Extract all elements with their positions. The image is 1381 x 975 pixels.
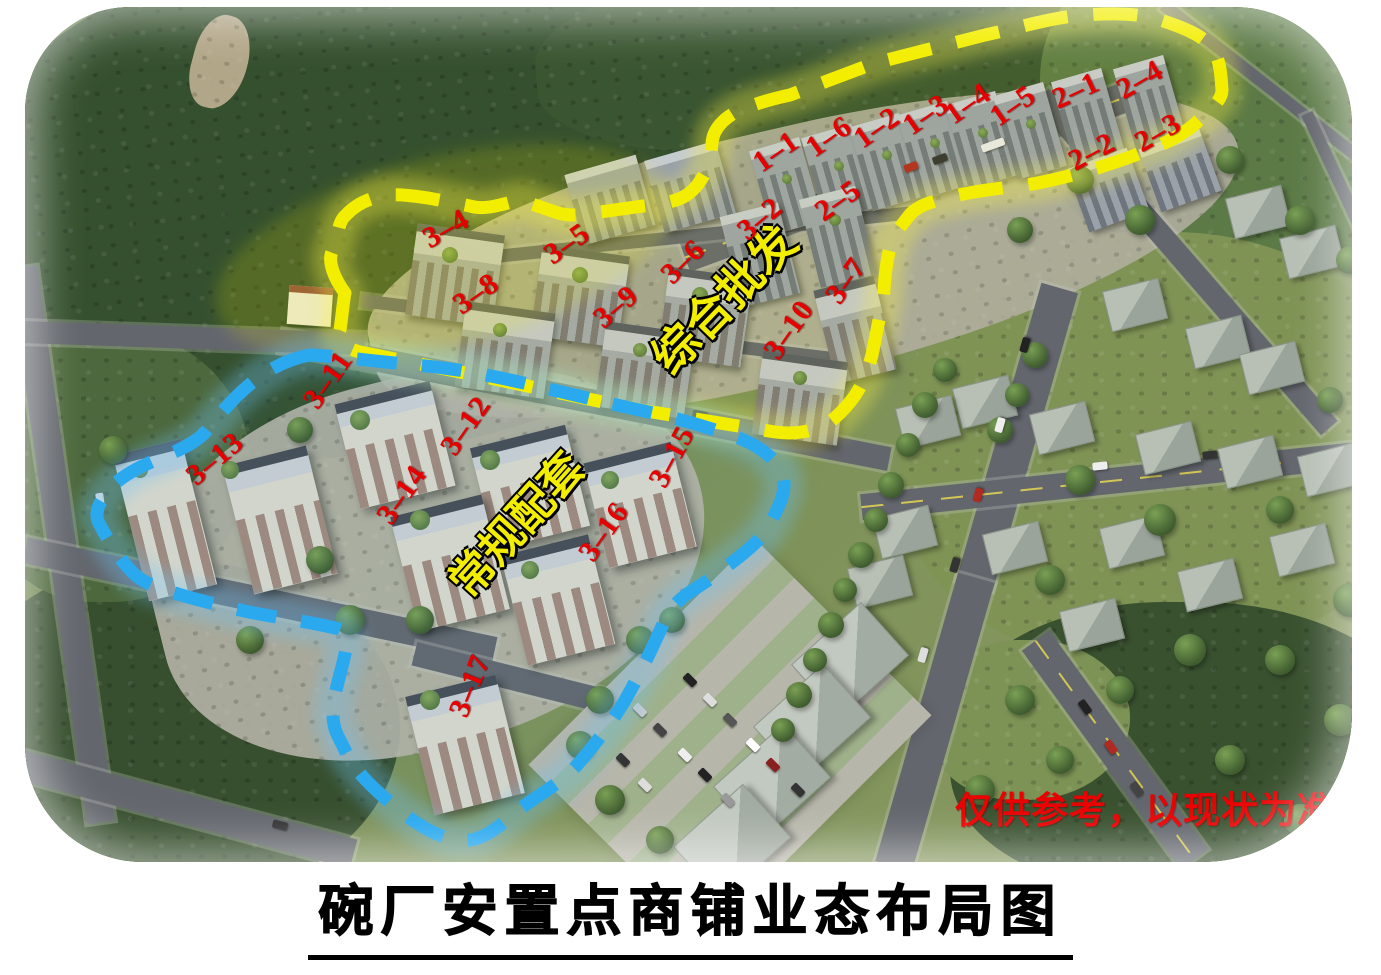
- building-label: 3–4: [417, 202, 476, 255]
- building-label: 2–1: [1047, 65, 1105, 116]
- caption: 碗厂安置点商铺业态布局图: [0, 866, 1381, 960]
- building-label: 2–5: [809, 173, 868, 228]
- page: 综合批发 常规配套 1–11–61–21–31–41–52–12–42–22–3…: [0, 0, 1381, 975]
- building-label: 3–9: [587, 279, 646, 336]
- building-label: 3–15: [642, 421, 702, 493]
- site-aerial-rendering: 综合批发 常规配套 1–11–61–21–31–41–52–12–42–22–3…: [25, 7, 1352, 862]
- building-label: 1–6: [800, 109, 859, 164]
- building-label: 3–14: [370, 459, 435, 531]
- building-label: 2–2: [1063, 126, 1121, 179]
- building-label: 3–7: [818, 252, 873, 311]
- building-label: 3–10: [757, 294, 822, 366]
- building-label: 1–5: [984, 78, 1043, 133]
- disclaimer-text: 仅供参考，以现状为准。: [955, 780, 1352, 834]
- building-label: 3–16: [572, 496, 637, 568]
- building-label: 3–17: [442, 650, 497, 722]
- building-label: 3–12: [434, 390, 499, 462]
- label-layer: 综合批发 常规配套 1–11–61–21–31–41–52–12–42–22–3…: [25, 7, 1352, 862]
- building-label: 1–2: [848, 100, 907, 155]
- building-label: 3–13: [180, 425, 251, 492]
- page-title: 碗厂安置点商铺业态布局图: [308, 866, 1072, 960]
- building-label: 2–4: [1111, 53, 1170, 106]
- building-label: 3–8: [447, 266, 506, 321]
- building-label: 3–5: [538, 216, 597, 271]
- zone-label-convenience: 常规配套: [431, 435, 596, 609]
- building-label: 1–1: [747, 124, 806, 179]
- building-label: 3–11: [296, 345, 360, 416]
- building-label: 2–3: [1129, 106, 1188, 159]
